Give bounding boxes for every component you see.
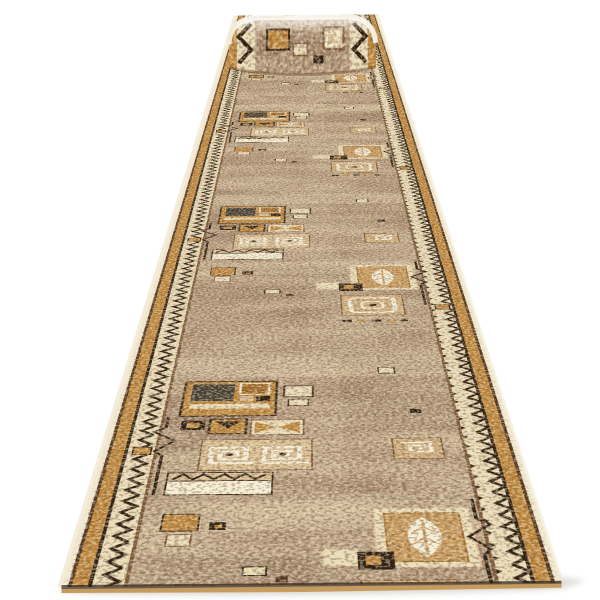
- rug-right-edge: [375, 13, 564, 583]
- rug-edges: [0, 0, 600, 600]
- product-photo: [0, 0, 600, 600]
- rug-left-edge: [53, 16, 244, 588]
- rug: [0, 0, 600, 600]
